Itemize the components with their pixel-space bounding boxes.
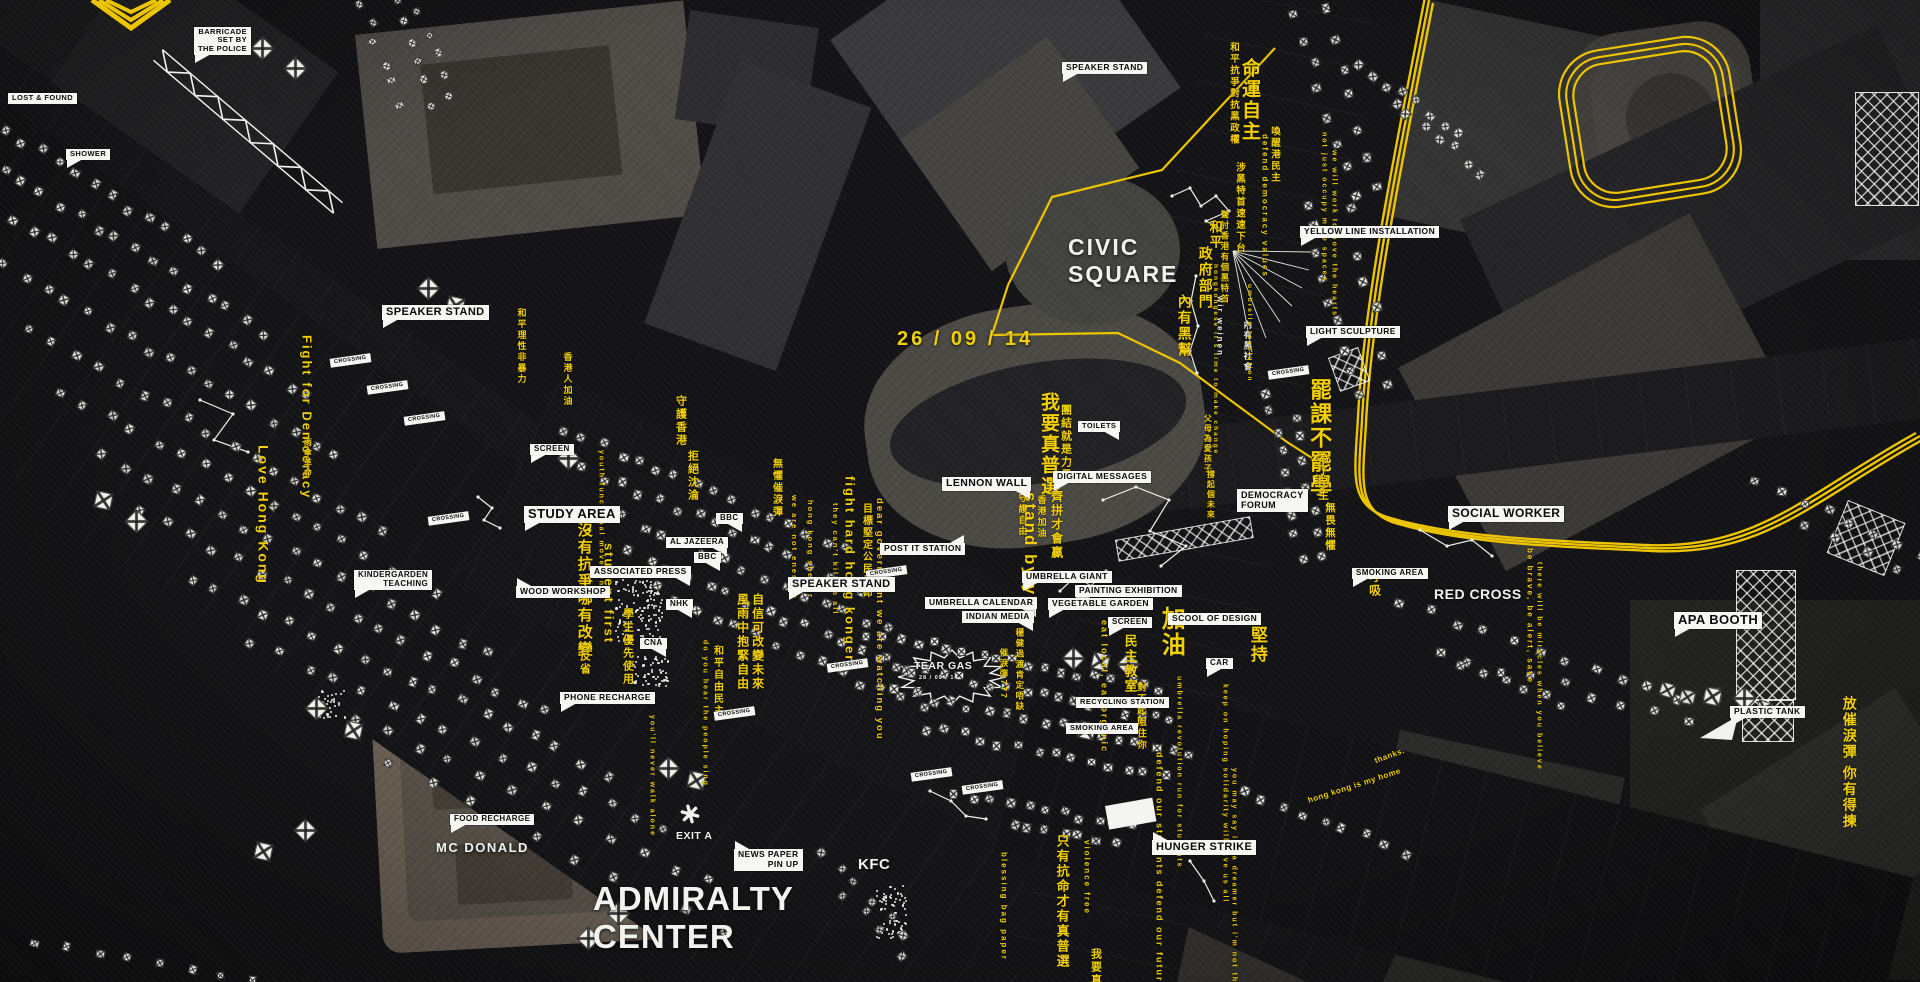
slogan-text: 催淚彈777 (999, 648, 1008, 700)
map-label-associated-press: ASSOCIATED PRESS (590, 566, 691, 578)
map-label-car: CAR (1206, 658, 1233, 669)
map-label-text: TOILETS (1082, 421, 1116, 430)
tent-marker (412, 7, 421, 16)
large-tent-marker (293, 818, 317, 842)
label-pointer-tail (561, 703, 577, 712)
slogan-text: 只有抗命才有真普選 (1055, 834, 1069, 969)
tent-marker (1376, 350, 1387, 361)
map-label-lennon-wall: LENNON WALL (942, 477, 1031, 491)
building-block (420, 45, 623, 194)
map-label-text: SMOKING AREA (1070, 723, 1134, 732)
tent-marker (1541, 689, 1552, 700)
crowd-dot (637, 656, 639, 658)
crowd-dot (335, 715, 337, 717)
map-label-screen: SCREEN (1108, 617, 1152, 628)
map-label-apa-booth: APA BOOTH (1674, 612, 1762, 629)
tent-marker (1679, 689, 1696, 706)
tent-marker (1350, 190, 1362, 202)
map-label-text: VEGETABLE GARDEN (1052, 598, 1149, 608)
protest-aerial-map: 26 / 09 / 14 CIVIC SQUARE ADMIRALTY CENT… (0, 0, 1920, 982)
crowd-dot (904, 897, 906, 899)
map-label-yellow-line-installation: YELLOW LINE INSTALLATION (1300, 226, 1439, 238)
map-label-news-paper-pin-up: NEWS PAPER PIN UP (734, 849, 803, 871)
slogan-text: 香港人加油 (562, 352, 571, 407)
map-label-text: DEMOCRACY FORUM (1241, 490, 1304, 510)
crowd-dot (655, 621, 657, 623)
tent-marker (1776, 486, 1787, 496)
tent-marker (249, 975, 257, 982)
slogan-text: 無畏無懼 (1324, 502, 1335, 552)
slogan-text: hongkongese it's time to make change (1211, 264, 1218, 455)
slogan-text: 放催淚彈 你有得揀 (1842, 696, 1857, 830)
tent-marker (1298, 37, 1308, 47)
crowd-dot (905, 900, 907, 902)
tent-marker (1312, 527, 1323, 539)
crowd-dot (646, 600, 648, 602)
label-pointer-tail (383, 319, 399, 328)
crowd-dot (656, 659, 658, 661)
crowd-dot (648, 604, 650, 606)
tent-marker (61, 941, 71, 952)
crowd-dot (642, 582, 644, 584)
crowd-dot (664, 679, 666, 681)
tent-marker (1476, 623, 1488, 635)
map-label-text: CNA (644, 638, 663, 647)
map-label-text: LENNON WALL (946, 477, 1027, 489)
map-label-study-area: STUDY AREA (524, 506, 620, 523)
tent-marker (1288, 528, 1299, 538)
slogan-text: there will be miracles when you believe (1535, 562, 1542, 771)
tent-marker (969, 794, 980, 805)
crowd-dot (895, 920, 897, 922)
slogan-text: 和平理性非暴力 (516, 308, 525, 385)
label-pointer-tail (1017, 622, 1033, 631)
slogan-text: blessing bag paper (999, 852, 1007, 961)
map-label-smoking-area: SMOKING AREA (1352, 568, 1428, 579)
slogan-text: wir weinen (1215, 296, 1223, 357)
map-label-indian-media: INDIAN MEDIA (962, 611, 1034, 623)
map-label-text: SMOKING AREA (1356, 568, 1424, 577)
tent-marker (1426, 604, 1437, 615)
tent-marker (1799, 520, 1810, 531)
map-label-recycling-station: RECYCLING STATION (1076, 697, 1169, 708)
crowd-dot (639, 607, 641, 609)
crowd-dot (656, 592, 658, 594)
tent-marker (305, 665, 315, 676)
map-label-al-jazeera: AL JAZEERA (666, 537, 728, 548)
slogan-text: 穩健過渡肯定唔缺 (1015, 628, 1024, 712)
tent-marker (889, 684, 899, 695)
tent-marker (1556, 702, 1566, 711)
title-mc-donald: MC DONALD (436, 840, 529, 855)
map-label-democracy-forum: DEMOCRACY FORUM (1237, 489, 1308, 512)
slogan-text: 守護香港 (674, 395, 686, 447)
label-pointer-tail (67, 159, 83, 168)
slogan-text: 為了民主 (1317, 452, 1328, 502)
map-date: 26 / 09 / 14 (897, 328, 1033, 351)
slogan-text: be brave, be alert, save (1525, 548, 1533, 684)
map-label-text: RECYCLING STATION (1080, 697, 1165, 706)
crowd-dot (889, 886, 891, 888)
slogan-text: 風雨中抱緊自由 (736, 593, 749, 691)
map-label-text: LIGHT SCULPTURE (1310, 326, 1396, 336)
crowd-dot (632, 586, 634, 588)
map-label-text: YELLOW LINE INSTALLATION (1304, 226, 1435, 236)
map-label-toilets: TOILETS (1078, 421, 1120, 432)
crowd-dot (642, 592, 644, 594)
crowd-dot (889, 920, 891, 922)
map-label-painting-exhibition: PAINTING EXHIBITION (1075, 585, 1182, 597)
slogan-text: 內有黑幫 (1177, 294, 1192, 358)
tent-marker (1436, 648, 1446, 658)
map-label-bbc: BBC (694, 552, 721, 563)
crowd-dot (665, 676, 667, 678)
tent-marker (1341, 161, 1352, 172)
crowd-dot (659, 619, 661, 621)
tent-marker (1683, 717, 1693, 726)
slogan-text: violence free (1082, 840, 1090, 915)
crowd-dot (644, 674, 646, 676)
tent-marker (1339, 345, 1350, 356)
map-label-text: SOCIAL WORKER (1452, 506, 1560, 520)
label-pointer-tail (1307, 337, 1323, 346)
label-pointer-tail (195, 54, 211, 63)
map-label-speaker-stand: SPEAKER STAND (788, 577, 895, 592)
crowd-dot (888, 933, 890, 935)
slogan-text: 涉黑特首速速下台 (1234, 162, 1244, 254)
tent-marker (1372, 182, 1383, 192)
crowd-dot (905, 923, 907, 925)
tent-marker (122, 951, 133, 962)
tent-marker (1295, 431, 1305, 441)
title-kfc: KFC (858, 856, 890, 873)
crowd-dot (644, 584, 646, 586)
tent-marker (216, 972, 224, 980)
tent-marker (1357, 276, 1369, 288)
map-label-text: BARRICADE SET BY THE POLICE (198, 27, 247, 53)
white-path-chain (1420, 530, 1492, 556)
map-label-cna: CNA (640, 638, 667, 649)
crowd-dot (898, 921, 900, 923)
crowd-dot (660, 602, 662, 604)
slogan-text: not just occupy more spaces (1320, 132, 1327, 282)
crowd-dot (335, 693, 337, 695)
crowd-dot (632, 588, 634, 590)
slogan-text: 無懼催淚彈 (770, 458, 781, 518)
map-label-text: WOOD WORKSHOP (520, 586, 606, 596)
slogan-text: keep on hoping solidarity will save us a… (1221, 684, 1228, 903)
tent-marker (1917, 550, 1920, 563)
slogan-text: 和平自由民主 (711, 645, 722, 717)
tent-marker (992, 740, 1002, 750)
crowd-dot (334, 705, 336, 707)
map-label-text: PHONE RECHARGE (564, 692, 651, 702)
tent-marker (367, 17, 378, 28)
crowd-dot (661, 612, 663, 614)
map-label-text: SPEAKER STAND (1066, 62, 1143, 72)
crowd-dot (894, 901, 896, 903)
tent-marker (981, 650, 990, 659)
slogan-text: you may say i'm a dreamer but i'm not th… (1230, 768, 1237, 982)
tent-marker (957, 647, 966, 656)
map-label-text: STUDY AREA (528, 506, 616, 521)
map-label-speaker-stand: SPEAKER STAND (1062, 62, 1147, 74)
tent-marker (960, 727, 971, 738)
slogan-text: defend our students defend our future (1154, 752, 1163, 982)
chain-node (1058, 589, 1061, 592)
map-label-text: SPEAKER STAND (386, 306, 485, 318)
tent-marker (1154, 686, 1164, 696)
crowd-dot (627, 584, 629, 586)
label-pointer-tail (1353, 578, 1369, 587)
crowd-dot (650, 618, 652, 620)
crowd-dot (883, 896, 885, 898)
tent-marker (1559, 655, 1571, 667)
slogan-text: 和平抗爭對抗黑政權 (1228, 42, 1238, 146)
tent-marker (1519, 684, 1530, 695)
tent-marker (1381, 379, 1393, 391)
slogan-text: fight hard hong kongers (843, 476, 857, 672)
slogan-text: you'll never walk alone (648, 715, 655, 837)
crowd-dot (643, 607, 645, 609)
map-label-screen: SCREEN (530, 444, 574, 455)
map-label-text: SPEAKER STAND (792, 578, 891, 590)
crowd-dot (344, 716, 346, 718)
tent-marker (1345, 202, 1358, 214)
crowd-dot (647, 607, 649, 609)
label-pointer-tail (674, 577, 690, 586)
slogan-text: Love Hong Kong (256, 445, 271, 585)
map-label-text: CAR (1210, 658, 1229, 667)
slogan-text: they can't kill us all (831, 503, 839, 615)
label-pointer-tail (1014, 490, 1030, 499)
tent-marker (1380, 82, 1391, 94)
crowd-dot (331, 694, 333, 696)
slogan-text: 喚醒港民主 (1269, 126, 1279, 184)
map-label-umbrella-giant: UMBRELLA GIANT (1022, 571, 1112, 583)
label-pointer-tail (1301, 237, 1317, 246)
tent-marker (1452, 619, 1465, 631)
crowd-dot (878, 937, 880, 939)
slogan-text: 堅持 (1248, 626, 1266, 664)
chain-node (1490, 554, 1493, 557)
slogan-text: 撐起個未來 (1206, 470, 1214, 520)
map-label-light-sculpture: LIGHT SCULPTURE (1306, 326, 1400, 338)
label-pointer-tail (726, 523, 742, 532)
tent-marker (1559, 677, 1570, 688)
tent-marker (930, 637, 939, 646)
map-label-text: NHK (670, 599, 689, 608)
tent-marker (1090, 837, 1100, 846)
map-label-text: KINDERGARDEN TEACHING (358, 570, 428, 588)
crowd-dot (628, 590, 630, 592)
tent-marker (750, 535, 761, 545)
chain-node (1445, 544, 1448, 547)
tent-marker (1013, 740, 1023, 749)
label-pointer-tail (704, 562, 720, 571)
crowd-dot (617, 590, 619, 592)
crowd-dot (330, 711, 332, 713)
slogan-text: umbrella revolution (1245, 284, 1252, 382)
crowd-dot (617, 636, 619, 638)
scaffold-truss (1736, 570, 1796, 700)
crowd-dot (324, 698, 326, 700)
large-tent-marker (253, 841, 273, 861)
tent-marker (1096, 816, 1106, 825)
map-label-lost-found: LOST & FOUND (8, 93, 77, 104)
tent-marker (1749, 476, 1760, 486)
tent-marker (382, 667, 393, 677)
label-pointer-tail (517, 578, 533, 587)
tent-marker (1477, 667, 1490, 680)
label-pointer-tail (1023, 582, 1039, 591)
tent-marker (1339, 64, 1349, 75)
label-pointer-tail (1449, 521, 1465, 530)
crowd-dot (645, 624, 647, 626)
map-label-plastic-tank: PLASTIC TANK (1730, 706, 1805, 718)
map-label-umbrella-calendar: UMBRELLA CALENDAR (925, 597, 1037, 609)
crowd-dot (667, 660, 669, 662)
map-label-nhk: NHK (666, 599, 693, 610)
label-pointer-tail (451, 824, 467, 833)
tent-marker (1371, 301, 1383, 313)
tent-marker (1124, 765, 1135, 776)
map-label-text: ASSOCIATED PRESS (594, 566, 687, 576)
map-label-text: SCREEN (1112, 617, 1148, 626)
tent-marker (1316, 550, 1327, 562)
large-tent-marker (93, 490, 113, 510)
map-label-bbc: BBC (716, 513, 743, 524)
tent-marker (1585, 692, 1597, 704)
label-pointer-tail (1675, 628, 1691, 637)
crowd-dot (649, 595, 651, 597)
tent-marker (1021, 822, 1032, 833)
title-admiralty-center: ADMIRALTY CENTER (593, 880, 794, 956)
crowd-dot (646, 580, 648, 582)
crowd-dot (655, 678, 657, 680)
tent-marker (399, 15, 409, 26)
label-pointer-tail (355, 589, 371, 598)
tent-marker (949, 789, 958, 799)
label-pointer-tail (1049, 609, 1065, 618)
slogan-text: TEAR GAS (914, 661, 972, 672)
tent-marker (1615, 700, 1626, 711)
label-pointer-tail (948, 535, 964, 544)
map-label-phone-recharge: PHONE RECHARGE (560, 692, 655, 704)
tent-marker (962, 705, 971, 713)
map-label-digital-messages: DIGITAL MESSAGES (1053, 471, 1151, 483)
map-label-text: BBC (698, 552, 717, 561)
label-pointer-tail (1731, 717, 1747, 726)
crowd-dot (323, 717, 325, 719)
slogan-text: 28 / 09 / 14 (919, 676, 959, 682)
tent-marker (1824, 503, 1836, 515)
crowd-dot (645, 586, 647, 588)
tent-marker (1151, 710, 1160, 719)
map-label-text: LOST & FOUND (12, 93, 73, 102)
crowd-dot (650, 592, 652, 594)
crowd-dot (665, 685, 667, 687)
label-pointer-tail (1207, 668, 1223, 677)
title-red-cross: RED CROSS (1434, 586, 1522, 602)
tent-marker (1298, 553, 1310, 565)
map-label-wood-workshop: WOOD WORKSHOP (516, 586, 610, 598)
tent-marker (1501, 675, 1511, 684)
map-label-scool-of-design: SCOOL OF DESIGN (1168, 613, 1261, 625)
crowd-dot (658, 609, 660, 611)
large-tent-marker (343, 720, 363, 740)
label-pointer-tail (1153, 832, 1169, 841)
large-tent-marker (416, 276, 440, 300)
tent-marker (95, 950, 105, 959)
tent-marker (1280, 467, 1289, 476)
slogan-text: 齊拼才會贏 (1050, 490, 1063, 560)
crowd-dot (623, 588, 625, 590)
crowd-dot (635, 673, 637, 675)
map-label-text: POST IT STATION (884, 543, 961, 553)
crowd-dot (647, 683, 649, 685)
crowd-dot (343, 690, 345, 692)
tent-marker (1103, 763, 1113, 773)
label-pointer-tail (531, 454, 547, 463)
map-label-text: SCOOL OF DESIGN (1172, 613, 1257, 623)
slogan-text: 雨傘革命 (303, 438, 311, 478)
title-exit-a: EXIT A (676, 830, 712, 842)
map-label-speaker-stand: SPEAKER STAND (382, 305, 489, 320)
tent-marker (1018, 713, 1028, 724)
map-label-text: DIGITAL MESSAGES (1057, 471, 1147, 481)
crowd-dot (889, 922, 891, 924)
tent-marker (188, 964, 198, 975)
tent-marker (706, 581, 717, 591)
label-pointer-tail (525, 522, 541, 531)
slogan-text: 反省 (578, 650, 590, 676)
map-label-text: APA BOOTH (1678, 612, 1758, 627)
map-label-social-worker: SOCIAL WORKER (1448, 506, 1564, 522)
map-label-text: BBC (720, 513, 739, 522)
map-label-text: HUNGER STRIKE (1156, 841, 1252, 853)
crowd-dot (648, 615, 650, 617)
tent-marker (1396, 86, 1409, 99)
map-label-food-recharge: FOOD RECHARGE (450, 814, 534, 825)
label-pointer-tail (735, 841, 751, 850)
map-label-text: PAINTING EXHIBITION (1079, 585, 1178, 595)
map-label-text: PLASTIC TANK (1734, 706, 1801, 716)
slogan-text: 自信可改變未來 (751, 593, 764, 691)
tent-marker (156, 958, 165, 967)
tent-marker (1274, 428, 1283, 438)
tent-marker (1891, 563, 1902, 574)
crowd-dot (330, 701, 332, 703)
label-pointer-tail (676, 609, 692, 618)
tent-marker (1353, 389, 1364, 400)
slogan-text: dear government we are watching you (874, 498, 884, 741)
map-label-text: SHOWER (70, 149, 106, 158)
chain-node (1470, 538, 1473, 541)
tent-marker (1056, 668, 1065, 679)
tent-marker (426, 31, 434, 39)
label-pointer-tail (650, 648, 666, 657)
tent-marker (1293, 414, 1302, 423)
slogan-text: 拒絕沈淪 (686, 450, 698, 502)
slogan-text: defend democracy values (1260, 134, 1268, 278)
map-label-shower: SHOWER (66, 149, 110, 160)
crowd-dot (637, 675, 639, 677)
map-label-text: INDIAN MEDIA (966, 611, 1030, 621)
map-label-text: SCREEN (534, 444, 570, 453)
tent-marker (940, 643, 951, 654)
title-civic-square: CIVIC SQUARE (1068, 234, 1178, 288)
